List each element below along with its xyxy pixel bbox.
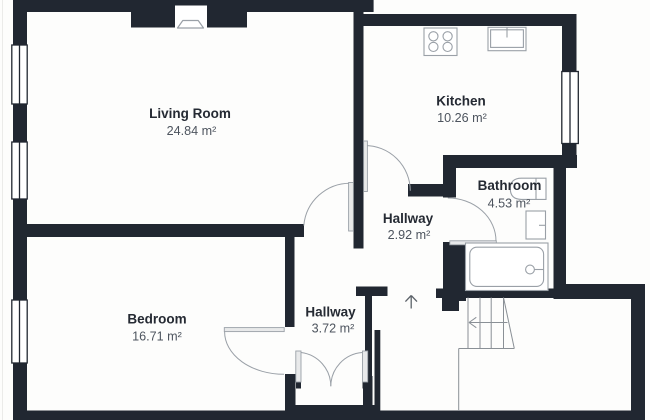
svg-text:Kitchen: Kitchen [436,94,486,109]
svg-text:3.72 m²: 3.72 m² [312,321,355,335]
svg-text:Living Room: Living Room [149,106,231,121]
svg-text:Hallway: Hallway [305,305,356,320]
svg-text:Hallway: Hallway [383,211,434,226]
svg-text:10.26 m²: 10.26 m² [437,111,487,125]
svg-text:4.53 m²: 4.53 m² [488,197,531,211]
svg-text:16.71 m²: 16.71 m² [132,329,182,343]
svg-text:24.84 m²: 24.84 m² [167,124,217,138]
svg-text:2.92 m²: 2.92 m² [388,228,431,242]
svg-text:Bathroom: Bathroom [478,178,542,193]
svg-text:Bedroom: Bedroom [127,312,186,327]
